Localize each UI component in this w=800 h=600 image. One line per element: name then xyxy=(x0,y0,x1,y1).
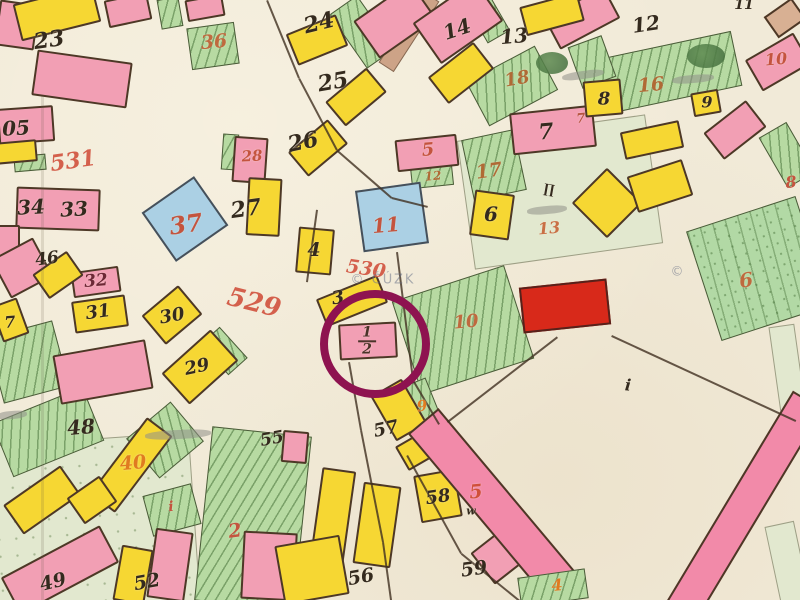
parcel-label: 11 xyxy=(734,0,753,13)
parcel-label: 28 xyxy=(241,146,263,165)
parcel-label: 58 xyxy=(424,485,452,509)
parcel-label: 16 xyxy=(637,73,665,97)
building-pink-23 xyxy=(31,50,132,109)
parcel-label: 56 xyxy=(346,564,376,590)
parcel-label: 37 xyxy=(167,207,204,240)
building-pink-top-b xyxy=(184,0,225,22)
building-pink-48 xyxy=(52,339,153,405)
building-pink-55 xyxy=(281,430,310,464)
parcel-label: 7 xyxy=(576,111,586,127)
parcel-label: 8 xyxy=(785,172,798,192)
building-yellow-tall-b xyxy=(352,482,401,568)
parcel-label: 59 xyxy=(459,556,488,581)
parcel-label: 2 xyxy=(227,519,243,543)
parcel-label: 52 xyxy=(132,569,162,595)
watermark-text: © xyxy=(671,265,686,280)
tree-b xyxy=(687,44,725,68)
parcel-label: 30 xyxy=(158,303,186,328)
parcel-label: 46 xyxy=(34,247,60,270)
parcel-label: 55 xyxy=(259,427,286,451)
parcel-label: 5 xyxy=(421,139,435,161)
building-pink-top-a xyxy=(104,0,153,28)
parcel-label: 10 xyxy=(764,49,788,70)
parcel-label: 13 xyxy=(537,218,561,239)
parcel-label: 17 xyxy=(474,158,503,183)
parcel-label: 5 xyxy=(468,480,483,503)
parcel-label: 48 xyxy=(66,414,96,440)
parcel-label: 9 xyxy=(701,93,712,112)
parcel-label: 7 xyxy=(537,118,555,145)
parcel-label: 40 xyxy=(119,451,147,475)
boundary-line xyxy=(611,335,796,422)
parcel-label: 05 xyxy=(1,115,30,140)
highlight-circle xyxy=(320,290,430,398)
parcel-label: 4 xyxy=(307,239,320,261)
parcel-label: 10 xyxy=(453,310,480,333)
building-yellow-left-edge xyxy=(0,139,38,165)
parcel-label: 31 xyxy=(84,300,112,324)
parcel-label: 11 xyxy=(371,212,401,238)
parcel-label: 34 xyxy=(16,194,45,219)
parcel-label: 12 xyxy=(631,10,662,38)
map-fold-line xyxy=(41,96,44,600)
parcel-label: 12 xyxy=(424,168,442,183)
meadow-bottom-right-strip xyxy=(764,520,800,600)
building-yellow-56 xyxy=(274,535,349,600)
parcel-label: 23 xyxy=(32,25,66,55)
parcel-label: 27 xyxy=(229,194,263,224)
parcel-label: 529 xyxy=(224,282,284,324)
parcel-label: 4 xyxy=(551,575,564,595)
watermark-text: © ČÚZK xyxy=(351,273,416,288)
garden-sliver-topleft xyxy=(157,0,184,30)
parcel-label: 6 xyxy=(484,202,498,226)
parcel-label: 531 xyxy=(48,145,97,177)
garden-16 xyxy=(602,31,743,113)
building-tan-corner xyxy=(764,0,800,38)
parcel-label: 32 xyxy=(83,270,108,292)
parcel-label: 13 xyxy=(499,23,529,49)
parcel-label: 25 xyxy=(316,67,351,98)
parcel-label: w xyxy=(466,505,475,518)
parcel-label: 33 xyxy=(59,196,88,221)
tree-a xyxy=(536,52,568,74)
building-red xyxy=(519,279,611,334)
cadastral-map[interactable]: 2324252627141312113433463231302943768948… xyxy=(0,0,800,600)
parcel-label: i xyxy=(624,375,632,394)
parcel-label: 8 xyxy=(598,89,611,110)
parcel-label: 7 xyxy=(4,312,17,332)
parcel-label: 18 xyxy=(503,66,531,91)
parcel-label: 36 xyxy=(200,30,228,54)
